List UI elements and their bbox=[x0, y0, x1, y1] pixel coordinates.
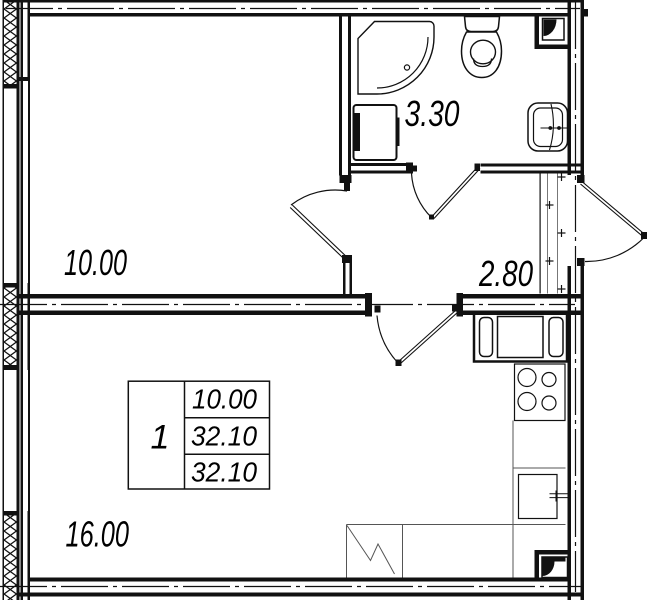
svg-text:10.00: 10.00 bbox=[64, 242, 127, 283]
svg-text:16.00: 16.00 bbox=[66, 513, 130, 554]
svg-text:10.00: 10.00 bbox=[192, 384, 257, 415]
svg-text:32.10: 32.10 bbox=[191, 421, 257, 452]
svg-text:1: 1 bbox=[151, 419, 170, 457]
svg-text:2.80: 2.80 bbox=[478, 253, 533, 294]
svg-text:32.10: 32.10 bbox=[191, 457, 257, 488]
svg-text:3.30: 3.30 bbox=[405, 93, 460, 134]
